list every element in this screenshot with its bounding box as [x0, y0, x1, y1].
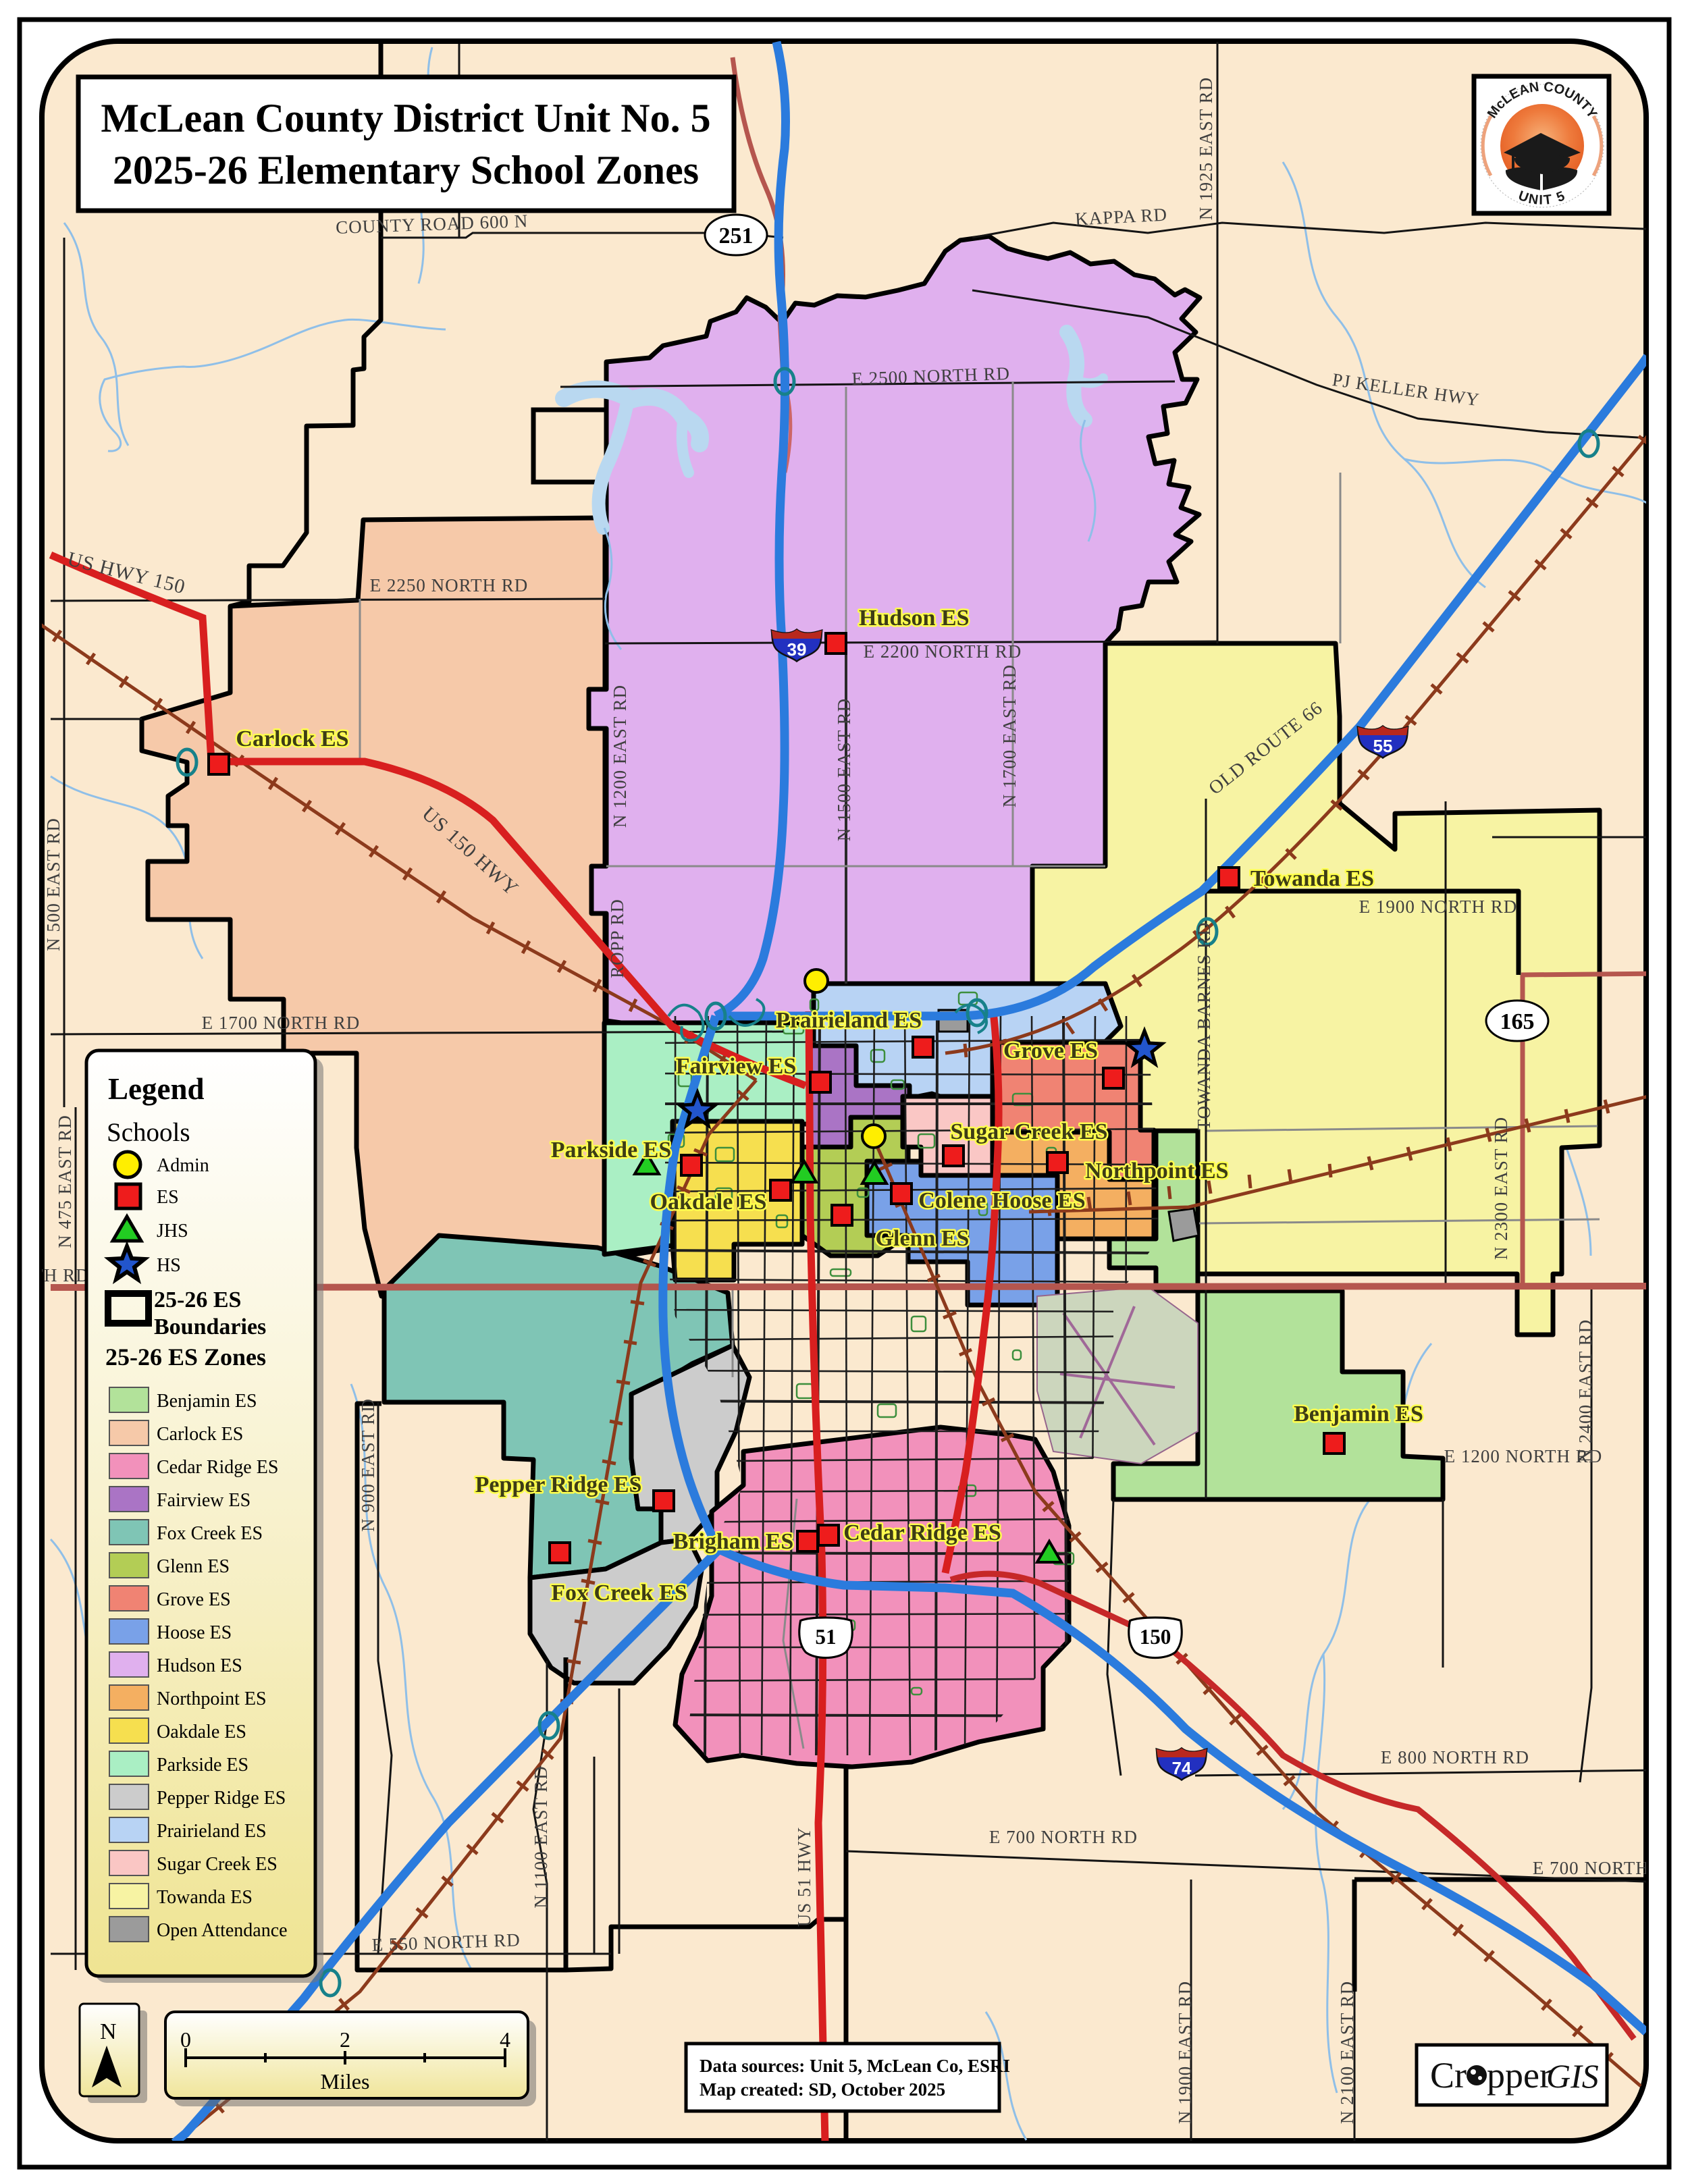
svg-text:Prairieland ES: Prairieland ES	[157, 1821, 267, 1842]
svg-text:Fox Creek ES: Fox Creek ES	[157, 1523, 263, 1544]
svg-text:4: 4	[500, 2027, 510, 2052]
svg-text:Miles: Miles	[321, 2069, 370, 2094]
svg-text:Sugar Creek ES: Sugar Creek ES	[157, 1854, 278, 1875]
svg-text:Pepper Ridge ES: Pepper Ridge ES	[475, 1472, 642, 1497]
svg-text:Parkside ES: Parkside ES	[157, 1755, 248, 1776]
svg-text:N 1200 EAST RD: N 1200 EAST RD	[610, 685, 630, 828]
svg-text:55: 55	[1373, 736, 1393, 756]
svg-text:Brigham ES: Brigham ES	[673, 1529, 794, 1554]
svg-text:JHS: JHS	[157, 1221, 188, 1242]
svg-text:Parkside ES: Parkside ES	[551, 1138, 672, 1163]
svg-text:Data sources: Unit 5, McLean C: Data sources: Unit 5, McLean Co, ESRI	[700, 2056, 1010, 2076]
svg-text:E 2250 NORTH RD: E 2250 NORTH RD	[370, 575, 529, 595]
svg-text:165: 165	[1500, 1009, 1535, 1034]
svg-text:Cedar Ridge ES: Cedar Ridge ES	[843, 1520, 1001, 1545]
svg-text:TOWANDA BARNES RD: TOWANDA BARNES RD	[1194, 922, 1214, 1130]
svg-text:N: N	[100, 2019, 117, 2044]
svg-text:Hoose ES: Hoose ES	[157, 1622, 232, 1643]
svg-text:Prairieland ES: Prairieland ES	[776, 1008, 922, 1033]
svg-text:Fairview ES: Fairview ES	[157, 1490, 250, 1511]
svg-text:Fairview ES: Fairview ES	[676, 1054, 796, 1079]
svg-text:ES: ES	[157, 1187, 179, 1208]
svg-text:US 51 HWY: US 51 HWY	[794, 1827, 814, 1927]
svg-text:0: 0	[180, 2027, 191, 2052]
svg-text:Hudson ES: Hudson ES	[859, 606, 970, 631]
svg-text:McLean County District Unit No: McLean County District Unit No. 5	[101, 96, 710, 140]
svg-text:Cedar Ridge ES: Cedar Ridge ES	[157, 1457, 278, 1478]
svg-text:E 700 NORTH RD: E 700 NORTH RD	[989, 1827, 1138, 1847]
svg-text:51: 51	[815, 1625, 836, 1649]
svg-text:Glenn ES: Glenn ES	[157, 1556, 230, 1577]
svg-text:251: 251	[719, 223, 754, 248]
svg-text:Fox Creek ES: Fox Creek ES	[551, 1580, 687, 1605]
svg-text:Carlock ES: Carlock ES	[236, 726, 348, 751]
svg-text:Benjamin ES: Benjamin ES	[1294, 1402, 1423, 1427]
svg-text:Schools: Schools	[107, 1118, 190, 1147]
svg-text:Towanda ES: Towanda ES	[1250, 866, 1374, 891]
svg-text:E 800 NORTH RD: E 800 NORTH RD	[1381, 1747, 1529, 1767]
svg-text:Admin: Admin	[157, 1155, 209, 1176]
svg-text:N 1900 EAST RD: N 1900 EAST RD	[1175, 1981, 1195, 2124]
svg-text:N 900 EAST RD: N 900 EAST RD	[358, 1398, 378, 1532]
svg-text:HS: HS	[157, 1255, 181, 1276]
svg-text:Pepper Ridge ES: Pepper Ridge ES	[157, 1788, 286, 1809]
svg-text:Grove ES: Grove ES	[157, 1589, 231, 1610]
svg-text:Benjamin ES: Benjamin ES	[157, 1391, 257, 1412]
svg-text:E 2200 NORTH RD: E 2200 NORTH RD	[864, 641, 1022, 662]
svg-text:Crpper: Crpper	[1430, 2055, 1552, 2096]
svg-text:Oakdale ES: Oakdale ES	[157, 1722, 246, 1742]
svg-text:E 1900 NORTH RD: E 1900 NORTH RD	[1359, 897, 1518, 917]
svg-text:E 1700 NORTH RD: E 1700 NORTH RD	[202, 1013, 361, 1033]
svg-text:N 2100 EAST RD: N 2100 EAST RD	[1337, 1981, 1357, 2124]
svg-text:2025-26 Elementary School Zone: 2025-26 Elementary School Zones	[113, 148, 699, 192]
svg-text:25-26 ES Zones: 25-26 ES Zones	[105, 1343, 266, 1370]
svg-text:N 2300 EAST RD: N 2300 EAST RD	[1491, 1117, 1511, 1260]
svg-text:N 2400 EAST RD: N 2400 EAST RD	[1575, 1319, 1595, 1462]
svg-text:25-26 ES: 25-26 ES	[154, 1287, 241, 1312]
svg-text:39: 39	[787, 639, 807, 660]
svg-text:74: 74	[1172, 1758, 1192, 1778]
svg-text:Hudson ES: Hudson ES	[157, 1655, 242, 1676]
svg-text:Glenn ES: Glenn ES	[876, 1226, 970, 1251]
svg-text:Oakdale ES: Oakdale ES	[650, 1190, 767, 1215]
svg-text:150: 150	[1140, 1625, 1171, 1649]
svg-text:Colene Hoose ES: Colene Hoose ES	[918, 1188, 1085, 1213]
svg-text:N 1500 EAST RD: N 1500 EAST RD	[834, 698, 854, 841]
svg-text:N 500 EAST RD: N 500 EAST RD	[43, 818, 63, 951]
svg-text:Open Attendance: Open Attendance	[157, 1920, 288, 1941]
svg-text:Map created: SD, October 2025: Map created: SD, October 2025	[700, 2079, 945, 2100]
svg-text:GIS: GIS	[1546, 2057, 1599, 2095]
svg-text:N 1700 EAST RD: N 1700 EAST RD	[999, 664, 1020, 807]
svg-text:Boundaries: Boundaries	[154, 1314, 266, 1339]
svg-text:N 1925 EAST RD: N 1925 EAST RD	[1196, 77, 1216, 220]
svg-text:N 475 EAST RD: N 475 EAST RD	[55, 1115, 75, 1248]
svg-text:Carlock ES: Carlock ES	[157, 1424, 243, 1445]
svg-text:2: 2	[340, 2027, 350, 2052]
svg-text:Towanda ES: Towanda ES	[157, 1887, 253, 1908]
svg-text:ROPP RD: ROPP RD	[607, 899, 627, 978]
svg-text:Grove ES: Grove ES	[1003, 1038, 1098, 1063]
svg-text:Sugar Creek ES: Sugar Creek ES	[950, 1119, 1107, 1144]
svg-text:Northpoint ES: Northpoint ES	[157, 1688, 267, 1709]
svg-text:Northpoint ES: Northpoint ES	[1085, 1158, 1229, 1183]
svg-text:Legend: Legend	[108, 1072, 205, 1106]
svg-text:N 1100 EAST RD: N 1100 EAST RD	[531, 1765, 551, 1908]
